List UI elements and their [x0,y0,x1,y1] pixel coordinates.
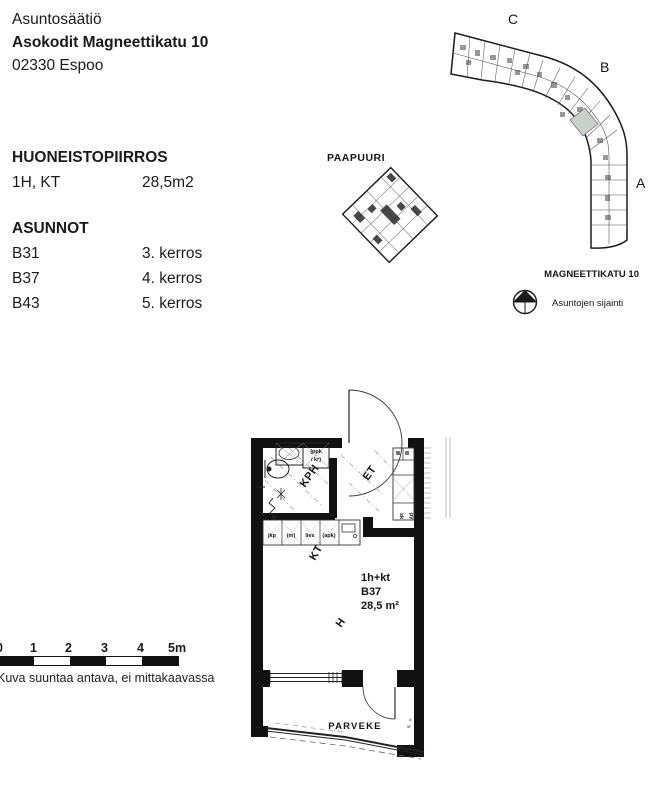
floor-plan: (ppk / kr) sk py jkp (m) lies (apk) KPH … [225,385,465,800]
room-label-et: ET [361,463,379,482]
balcony-door [363,687,395,719]
section-label-a: A [636,175,646,191]
fixture-label-sk: sk [398,513,404,520]
kitchen-sink [342,524,355,532]
fixture-label-jkp: jkp [267,533,277,539]
scale-bar: 0 1 2 3 4 5m Kuva suuntaa antava, ei mit… [0,641,220,685]
kitchen-strip: jkp (m) lies (apk) [263,520,360,545]
hall-closets [393,448,414,520]
apartment-row: B37 4. kerros [12,266,272,291]
apartment-row: B43 5. kerros [12,291,272,316]
unit-type-label: 1h+kt [361,572,390,584]
building-name: Asokodit Magneettikatu 10 [12,31,208,54]
paapuuri-building: PAAPUURI [300,140,472,280]
floor-drain-icon [277,488,285,500]
scale-ticks: 0 1 2 3 4 5m [0,641,220,655]
unit-info: 1h+kt B37 28,5 m² [361,572,399,612]
apartment-id: B31 [12,241,40,266]
fixture-label-apk: (apk) [322,533,335,539]
paapuuri-outline [343,168,438,263]
room-label-kph: KPH [298,463,322,490]
fixture-label-kr: / kr) [311,457,321,463]
walls [251,438,424,757]
org-name: Asuntosäätiö [12,8,208,31]
bathroom-fixtures [256,443,303,519]
fixture-label-m: (m) [287,533,296,539]
apartment-id: B37 [12,266,40,291]
entrance-door [349,390,402,496]
location-caption: Asuntojen sijainti [552,298,623,309]
apartment-floor: 4. kerros [142,266,202,291]
apartment-info: HUONEISTOPIIRROS 1H, KT 28,5m2 ASUNNOT B… [12,145,272,316]
scale-tick: 3 [101,641,108,655]
scale-tick: 2 [65,641,72,655]
scale-tick: 4 [137,641,144,655]
unit-id-label: B37 [361,586,381,598]
room-label-kt: KT [307,543,325,563]
city-line: 02330 Espoo [12,54,208,77]
fixture-label-ppk: (ppk [310,449,323,455]
document-header: Asuntosäätiö Asokodit Magneettikatu 10 0… [12,8,208,77]
scale-tick: 5m [168,641,186,655]
section-label-b: B [600,59,609,75]
scale-tick: 1 [30,641,37,655]
scale-bar-strip [0,656,179,666]
room-label-h: H [334,616,349,630]
scale-tick: 0 [0,641,3,655]
north-arrow-icon [513,290,537,314]
apartment-floor: 3. kerros [142,241,202,266]
floorplan-title: HUONEISTOPIIRROS [12,145,272,170]
street-label: MAGNEETTIKATU 10 [544,269,639,280]
section-label-c: C [508,11,518,27]
paapuuri-label: PAAPUURI [327,152,385,164]
balcony-window [270,671,342,684]
fixture-label-o: o [409,717,412,722]
fixture-label-lies: lies [305,533,314,539]
apartment-floor: 5. kerros [142,291,202,316]
apartment-row: B31 3. kerros [12,241,272,266]
hatch-right [424,448,431,518]
apartments-section-title: ASUNNOT [12,216,272,241]
apartment-area: 28,5m2 [142,170,194,195]
fixture-label-py: py [408,513,414,520]
unit-area-label: 28,5 m² [361,600,399,612]
room-label-parveke: PARVEKE [328,721,381,732]
scale-caption: Kuva suuntaa antava, ei mittakaavassa [0,671,220,685]
apartment-type: 1H, KT [12,170,60,195]
apartment-id: B43 [12,291,40,316]
fixture-label-vr: vr [407,724,411,729]
